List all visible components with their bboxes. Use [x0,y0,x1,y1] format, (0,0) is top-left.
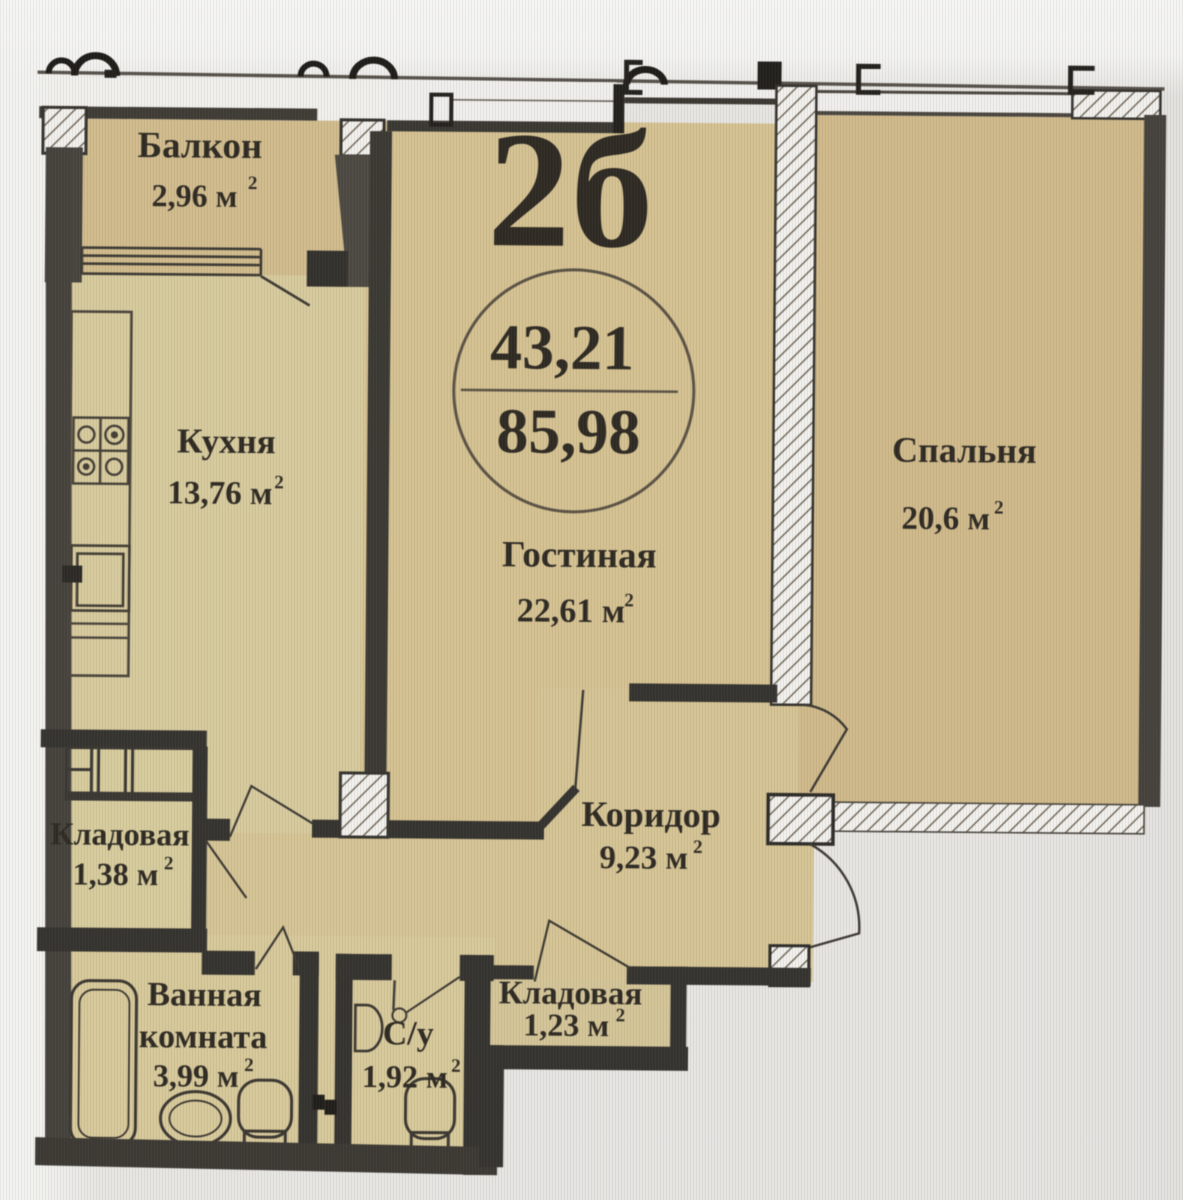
svg-text:9,23 м: 9,23 м [599,840,688,877]
svg-text:1,23 м: 1,23 м [523,1006,609,1043]
svg-text:Балкон: Балкон [137,125,262,167]
svg-text:22,61 м: 22,61 м [517,592,625,630]
svg-text:2: 2 [451,1056,461,1077]
svg-text:13,76 м: 13,76 м [167,475,272,512]
svg-text:2б: 2б [487,97,655,282]
svg-text:2: 2 [693,837,703,858]
svg-text:С/у: С/у [383,1015,434,1052]
svg-text:2: 2 [248,173,258,194]
svg-text:20,6 м: 20,6 м [901,501,990,538]
svg-text:комната: комната [139,1018,268,1056]
svg-text:Гостиная: Гостиная [502,534,657,576]
svg-text:1,92 м: 1,92 м [362,1058,448,1095]
svg-text:2: 2 [994,498,1004,519]
svg-text:1,38 м: 1,38 м [73,855,159,892]
svg-text:Спальня: Спальня [892,430,1037,471]
svg-text:Кладовая: Кладовая [50,815,189,852]
svg-text:2: 2 [274,472,284,493]
svg-text:Коридор: Коридор [581,794,721,835]
svg-text:3,99 м: 3,99 м [153,1057,239,1094]
svg-text:2: 2 [164,853,174,874]
svg-text:2: 2 [244,1055,254,1076]
svg-text:43,21: 43,21 [490,311,635,383]
svg-text:Кухня: Кухня [177,421,276,461]
svg-text:85,98: 85,98 [496,395,641,467]
svg-text:2: 2 [616,1005,626,1026]
svg-text:Ванная: Ванная [147,976,262,1014]
svg-text:2: 2 [624,590,634,611]
svg-text:2,96 м: 2,96 м [151,177,237,214]
